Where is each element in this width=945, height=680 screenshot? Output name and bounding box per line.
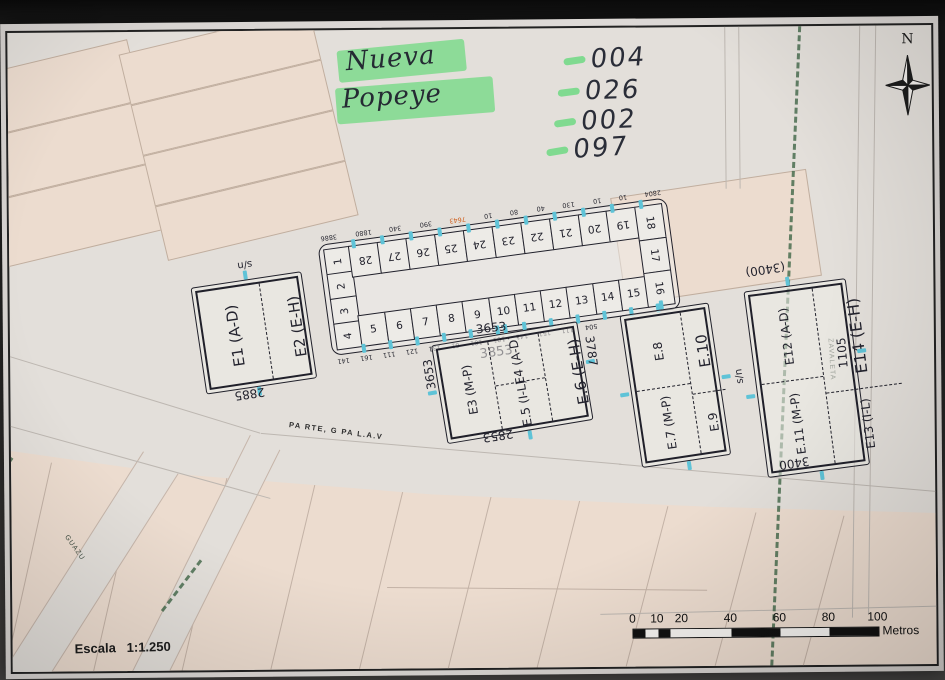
lot-number: 22 <box>530 229 545 243</box>
survey-tick <box>620 392 629 397</box>
lot-number: 26 <box>415 245 430 259</box>
block-e3-e6: E3 (M-P) E4 (A-D) E.5 (I-L) E.6 (E-H) <box>431 321 593 444</box>
note-2853: 2853 <box>482 427 514 445</box>
parcel-line <box>387 587 707 591</box>
parcel-line <box>268 481 316 674</box>
dimension-mark: 10 <box>592 196 601 205</box>
lot-number: 18 <box>644 215 658 230</box>
dimension-mark: 10 <box>483 211 492 220</box>
scale-tick-label: 60 <box>773 610 786 624</box>
code-item: 097 <box>545 131 629 166</box>
scale-label: Escala <box>74 640 116 656</box>
parcel-line <box>356 487 404 674</box>
dimension-mark: 10 <box>618 193 627 202</box>
dimension-mark: 1880 <box>354 228 371 238</box>
code-number: 026 <box>583 75 642 107</box>
scale-bar-segment <box>633 629 645 637</box>
parcel-line <box>444 494 492 674</box>
dimension-mark: 161 <box>360 353 373 363</box>
code-number: 097 <box>572 131 630 165</box>
scale-bar-segment <box>646 629 658 637</box>
lot-number: 25 <box>444 241 459 255</box>
survey-tick <box>819 471 824 480</box>
lot-number: 2 <box>335 282 348 290</box>
scale-bar-segments <box>632 626 879 638</box>
scale-tick-label: 100 <box>867 609 887 623</box>
survey-tick <box>528 430 533 440</box>
block-label-e9: E.9 <box>706 411 723 432</box>
lot-number: 16 <box>653 281 667 296</box>
lot-number: 28 <box>358 253 373 267</box>
lot-number: 21 <box>558 225 573 239</box>
dimension-mark: 80 <box>510 208 519 217</box>
block-label-e3: E3 (M-P) <box>459 364 481 416</box>
dimension-mark: 121 <box>405 346 418 356</box>
compass-n-label: N <box>901 31 913 47</box>
lot-number: 27 <box>386 249 401 263</box>
code-number: 004 <box>589 42 647 75</box>
lot-number: 24 <box>472 237 487 251</box>
lot-number: 9 <box>473 309 481 322</box>
lot-number: 4 <box>342 331 355 339</box>
note-sn-mid: s/n <box>733 368 746 384</box>
road-line <box>724 27 726 189</box>
code-item: 026 <box>557 75 640 107</box>
survey-tick <box>721 374 730 379</box>
scale-bar-unit: Metros <box>882 623 919 637</box>
block-label-e4: E4 (A-D) <box>506 334 528 386</box>
scale-bar-segment <box>670 629 682 637</box>
paper-sheet: ZAVALETA GUAZU PA RTE, G PA L.A.V Nueva … <box>0 16 944 679</box>
scale-bar-segment <box>658 629 670 637</box>
parcel-line <box>797 516 845 674</box>
block-label-e5: E.5 (I-L) <box>513 379 535 427</box>
highlighter-dash <box>563 55 586 65</box>
dimension-mark: 3886 <box>320 232 337 242</box>
survey-tick <box>746 394 755 399</box>
lot-number: 1 <box>332 257 345 265</box>
block-label-e1: E1 (A-D) <box>222 303 249 367</box>
map-frame: ZAVALETA GUAZU PA RTE, G PA L.A.V Nueva … <box>5 23 939 674</box>
title-annotation-line1: Nueva <box>344 40 436 77</box>
block-inner: E12 (A-D) E.11 (M-P) E14 (E-H) E13 (I-L) <box>748 283 866 474</box>
lot-number: 20 <box>587 222 602 236</box>
survey-tick <box>428 390 438 395</box>
lot-number: 17 <box>648 248 662 263</box>
compass: N <box>875 31 939 128</box>
lot-number: 14 <box>600 290 615 304</box>
note-sn-e1e2: s/n <box>237 258 253 271</box>
title-annotation-line2: Popeye <box>341 79 443 115</box>
highlighter-dash <box>546 146 569 157</box>
scale-tick-label: 40 <box>724 611 737 625</box>
survey-tick <box>242 270 247 279</box>
lot-number: 19 <box>616 218 631 232</box>
scale-tick-label: 10 <box>650 611 663 625</box>
block-e11-e14: E12 (A-D) E.11 (M-P) E14 (E-H) E13 (I-L) <box>743 278 870 478</box>
dimension-mark: 390 <box>419 219 432 229</box>
block-e1-e2: E1 (A-D) E2 (E-H) <box>190 271 317 394</box>
lot-number: 15 <box>626 287 641 301</box>
lot-number: 6 <box>395 319 403 332</box>
block-label-e10: E.10 <box>692 333 715 369</box>
scale-bar-labels: 01020406080100 <box>632 609 877 625</box>
note-2885: 2885 <box>234 385 266 403</box>
dimension-mark: 340 <box>389 224 402 234</box>
lot-number: 3 <box>339 306 352 314</box>
scale-bar-segment <box>731 628 780 636</box>
street-label: PA RTE, G PA L.A.V <box>289 420 384 441</box>
photo-stage: ZAVALETA GUAZU PA RTE, G PA L.A.V Nueva … <box>0 0 945 680</box>
lot-number: 8 <box>447 312 455 325</box>
parcel-line <box>532 500 580 674</box>
scale-text: Escala 1:1.250 <box>74 639 171 657</box>
scale-bar-segment <box>682 629 731 637</box>
block-label-e2: E2 (E-H) <box>284 295 311 359</box>
scale-tick-label: 0 <box>629 612 636 626</box>
lot-number: 10 <box>496 305 511 319</box>
dimension-mark: 111 <box>383 350 396 360</box>
compass-star-icon <box>875 47 938 124</box>
highlighter-dash <box>557 87 580 97</box>
block-label-e7: E.7 (M-P) <box>658 395 680 451</box>
scale-bar: 01020406080100 Metros <box>632 609 932 652</box>
block-label-e12: E12 (A-D) <box>776 307 797 366</box>
lot-number: 13 <box>574 294 589 308</box>
lot-cell: 17 <box>639 236 671 274</box>
scale-bar-segment <box>780 628 829 636</box>
dimension-mark: 40 <box>536 204 545 213</box>
block-inner: E.8 E.7 (M-P) E.10 E.9 <box>624 307 727 464</box>
highlighter-dash <box>554 117 577 127</box>
title-text: Popeye <box>341 79 443 115</box>
dimension-mark: 130 <box>562 200 575 210</box>
block-inner: E3 (M-P) E4 (A-D) E.5 (I-L) E.6 (E-H) <box>436 326 589 440</box>
road-line <box>261 433 622 465</box>
scale-tick-label: 80 <box>822 610 835 624</box>
scale-tick-label: 20 <box>675 611 688 625</box>
survey-tick <box>687 461 692 470</box>
lot-number: 11 <box>522 301 537 315</box>
block-inner: E1 (A-D) E2 (E-H) <box>195 276 313 390</box>
scale-ratio: 1:1.250 <box>126 639 170 655</box>
block-label-e8: E.8 <box>650 341 667 362</box>
block-label-e11: E.11 (M-P) <box>787 392 809 455</box>
block-e7-e10: E.8 E.7 (M-P) E.10 E.9 <box>619 302 731 468</box>
lot-number: 7 <box>421 316 429 329</box>
dimension-mark: 141 <box>337 356 350 366</box>
scale-bar-segment <box>829 627 878 635</box>
lot-number: 5 <box>369 323 377 336</box>
note-1105: 1105 <box>834 337 851 369</box>
road-line <box>738 27 740 189</box>
dimension-mark: 7643 <box>449 215 466 225</box>
lot-number: 12 <box>548 298 563 312</box>
lot-number: 23 <box>501 233 516 247</box>
block-label-e13: E13 (I-L) <box>858 397 878 449</box>
code-item: 004 <box>563 42 647 76</box>
